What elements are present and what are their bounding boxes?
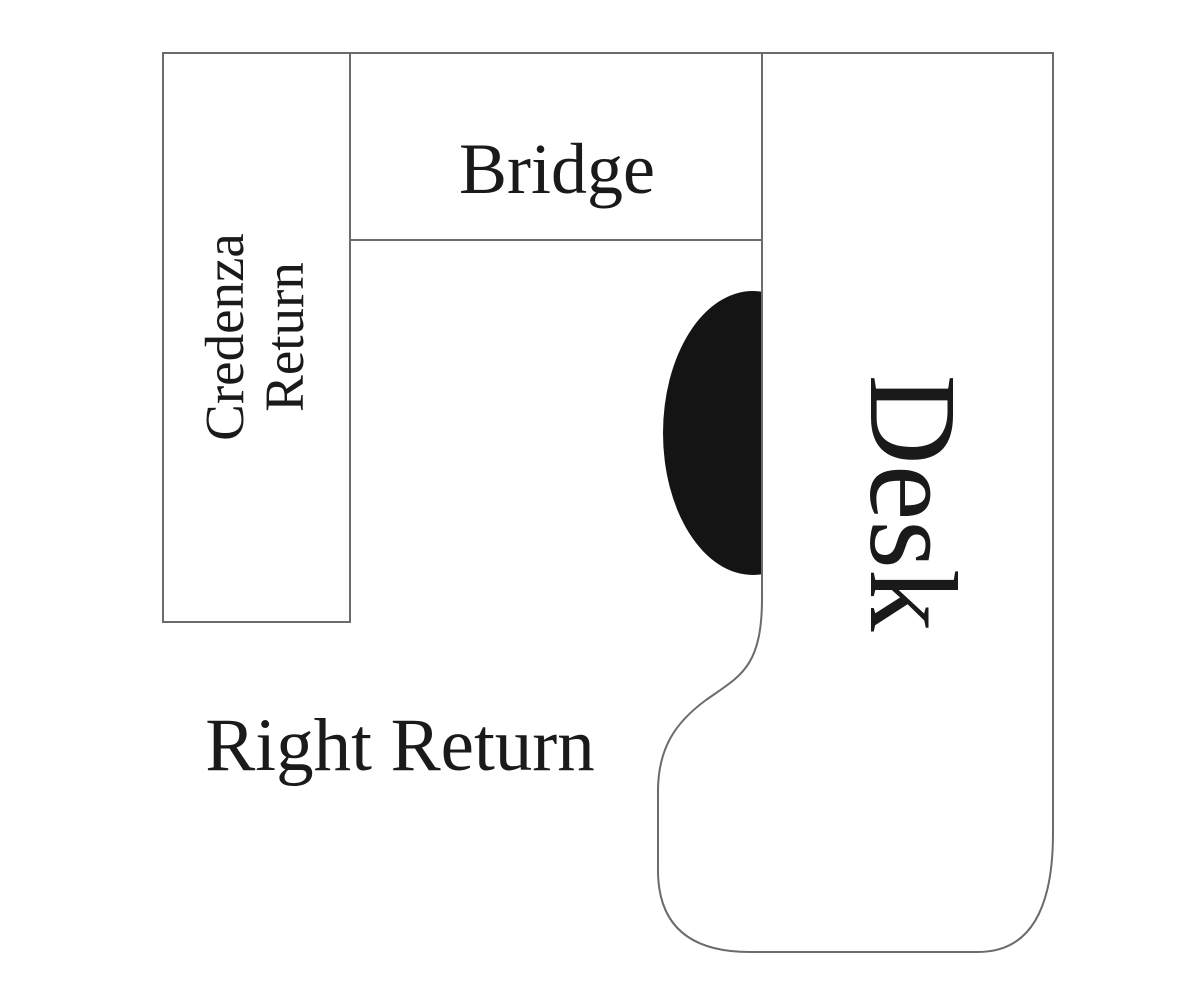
desk-label: Desk xyxy=(843,375,981,632)
diagram-canvas: Bridge Credenza Return Desk Right Return xyxy=(0,0,1200,1000)
desk-layout-diagram: Bridge Credenza Return Desk Right Return xyxy=(0,0,1200,1000)
right-return-label: Right Return xyxy=(205,704,595,787)
credenza-return-label-line2: Return xyxy=(254,262,315,412)
bridge-label: Bridge xyxy=(459,129,655,209)
credenza-return-label-line1: Credenza xyxy=(194,233,255,441)
